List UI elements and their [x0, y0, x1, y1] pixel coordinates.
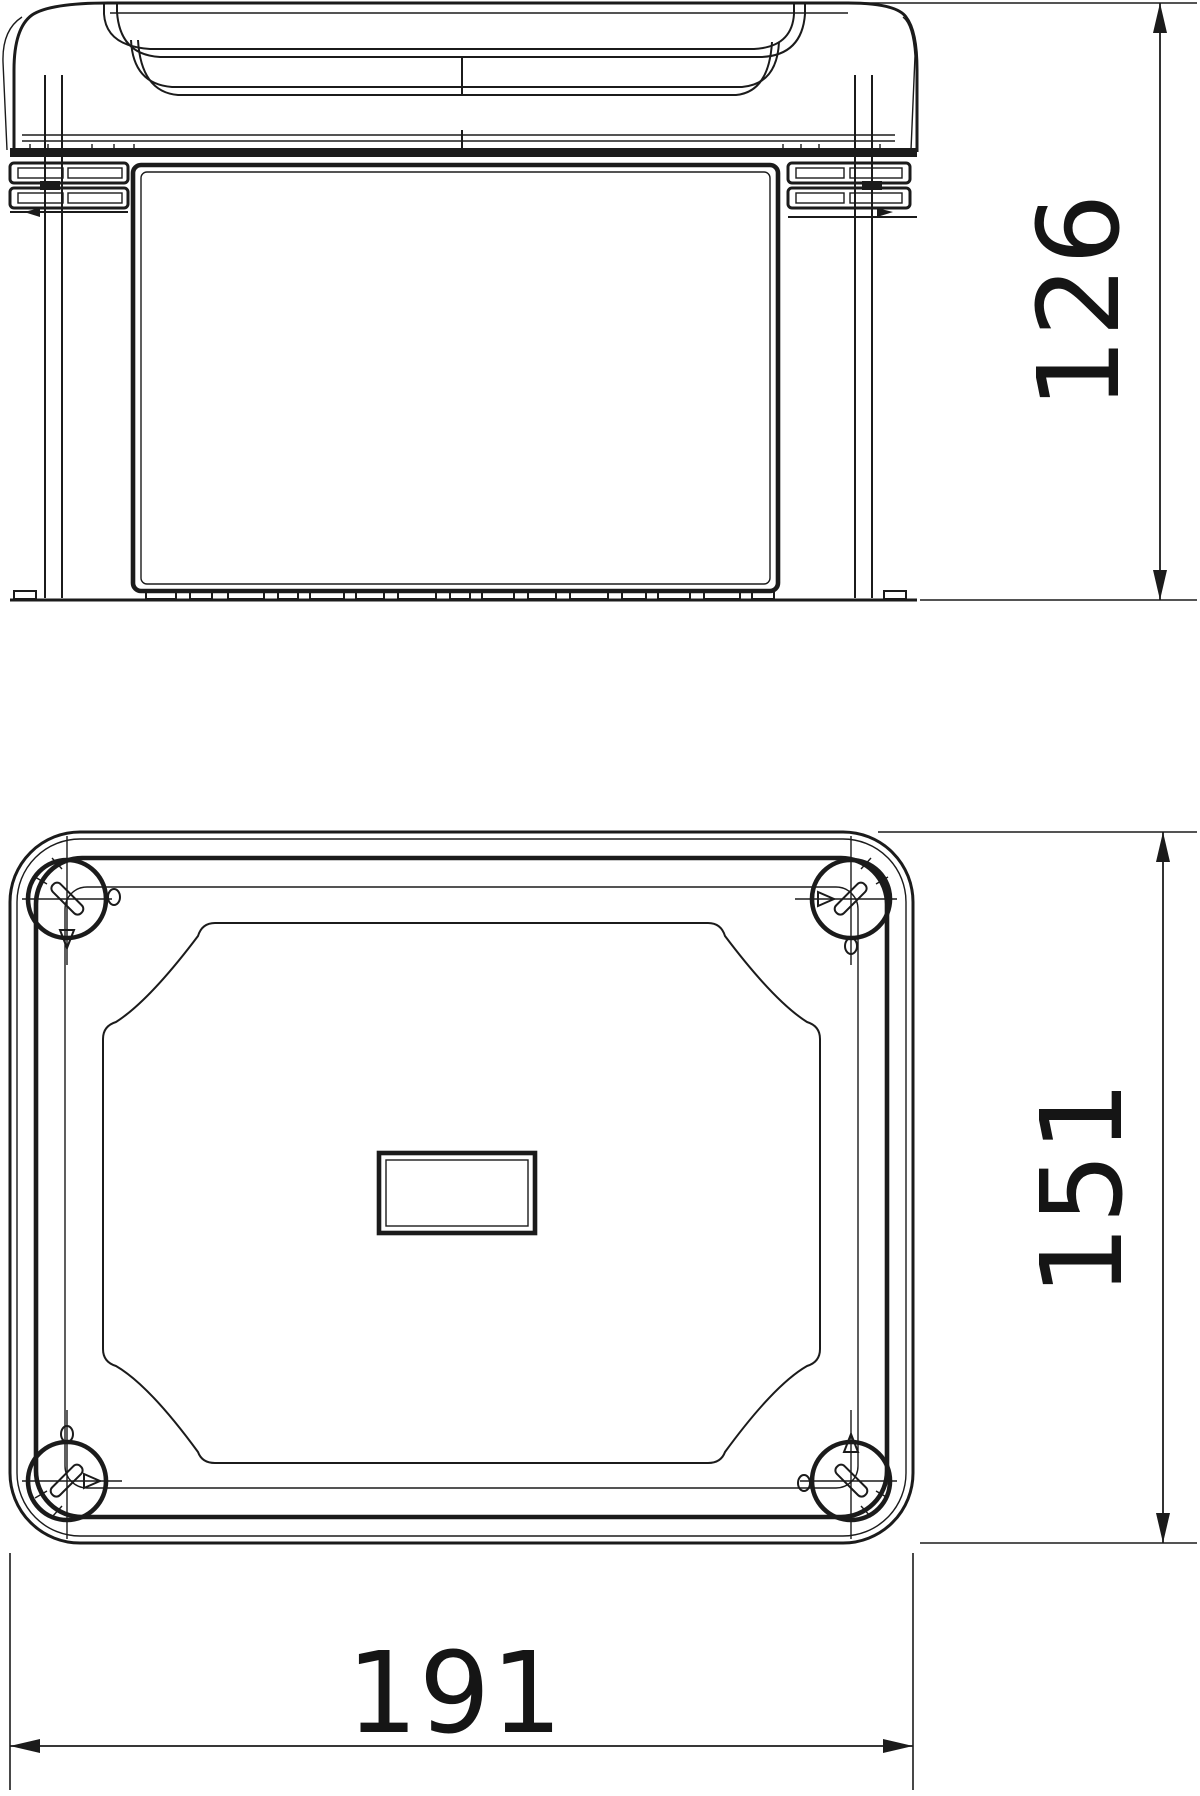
arrowhead-down-icon	[1156, 1513, 1170, 1543]
front-elevation-view	[3, 3, 917, 600]
arrowhead-up-icon	[1153, 3, 1167, 33]
right-latch-bands	[788, 163, 917, 217]
lid-right-skin	[903, 17, 915, 150]
corner-screw-top-right	[795, 836, 897, 965]
arrowhead-left-icon	[10, 1739, 40, 1753]
body-front-face	[133, 165, 778, 591]
arrowhead-up-icon	[1156, 832, 1170, 862]
handle-recess	[104, 3, 805, 148]
label-field	[379, 1153, 535, 1233]
corner-screw-bottom-right	[798, 1410, 897, 1539]
dimension-text-191: 191	[347, 1629, 564, 1759]
arrowhead-down-icon	[1153, 570, 1167, 600]
plan-bevel-inner	[65, 887, 858, 1488]
dimension-text-126: 126	[1015, 193, 1145, 410]
corner-facet-ticks	[35, 858, 888, 1517]
lid-panel-outline	[103, 923, 820, 1463]
lid-outline	[14, 3, 917, 152]
dimension-plan-depth: 151	[878, 832, 1197, 1543]
plan-outer-outline	[10, 832, 913, 1543]
drawing-sheet: 126 151 191	[0, 0, 1200, 1796]
top-plan-view	[10, 832, 913, 1543]
screw-tab	[108, 889, 120, 905]
dimension-plan-width: 191	[10, 1553, 913, 1790]
dimension-text-151: 151	[1018, 1080, 1148, 1297]
dimension-front-height: 126	[858, 3, 1197, 600]
left-latch-bands	[10, 163, 128, 217]
arrowhead-right-icon	[883, 1739, 913, 1753]
technical-drawing: 126 151 191	[0, 0, 1200, 1796]
plan-bevel-band	[36, 858, 887, 1517]
flange-band	[10, 148, 917, 157]
plan-inner-outline	[17, 839, 906, 1536]
